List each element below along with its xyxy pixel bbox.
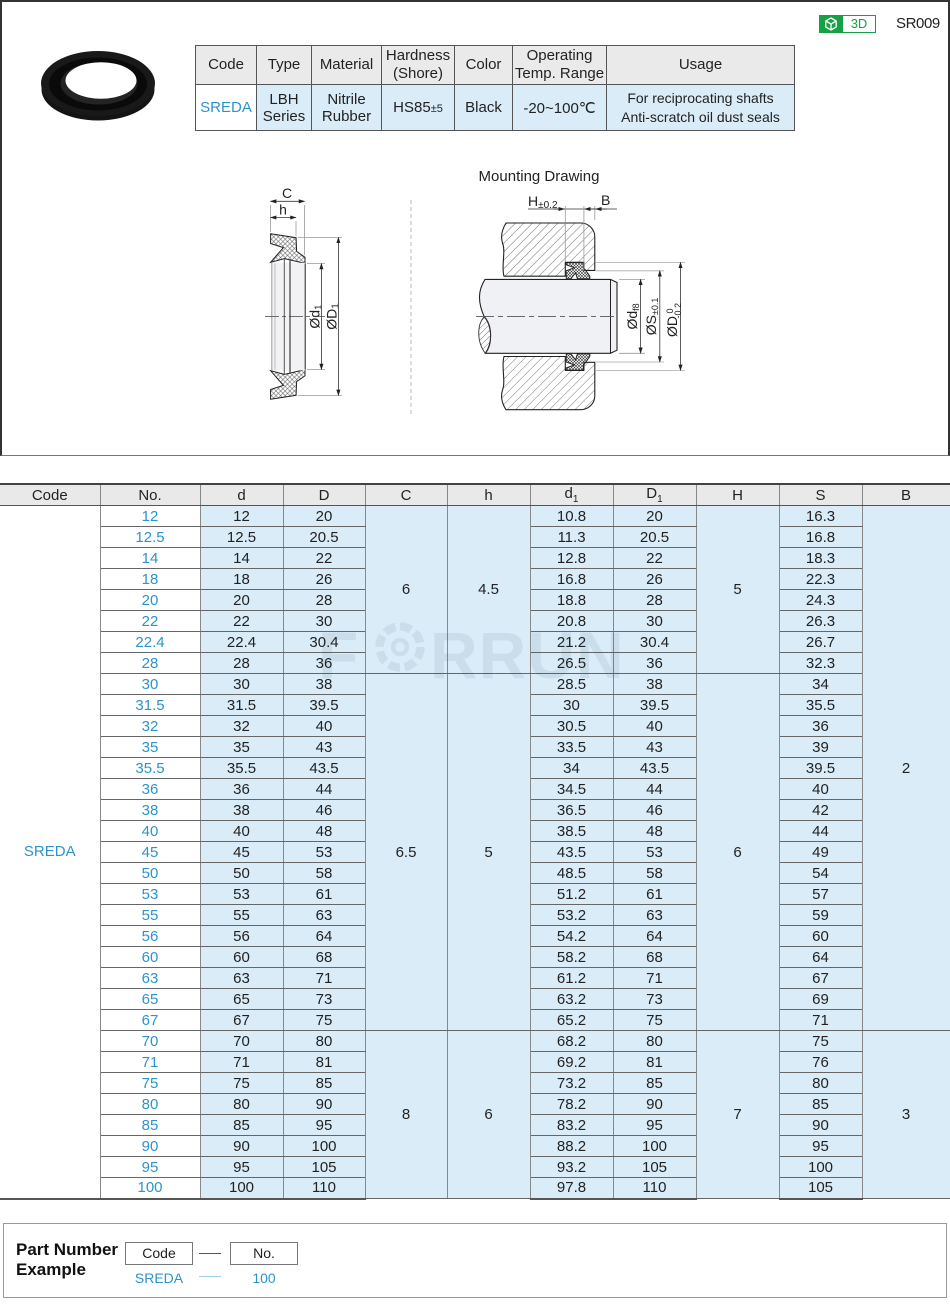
svg-text:h: h [279,202,287,218]
svg-text:Mounting Drawing: Mounting Drawing [479,168,600,185]
svg-text:C: C [282,185,292,201]
svg-text:ØD1: ØD1 [324,303,342,330]
svg-text:Ødf8: Ødf8 [624,303,641,329]
svg-text:H±0.2: H±0.2 [528,193,558,211]
svg-text:B: B [601,192,610,208]
svg-text:ØS±0.1: ØS±0.1 [643,298,660,336]
